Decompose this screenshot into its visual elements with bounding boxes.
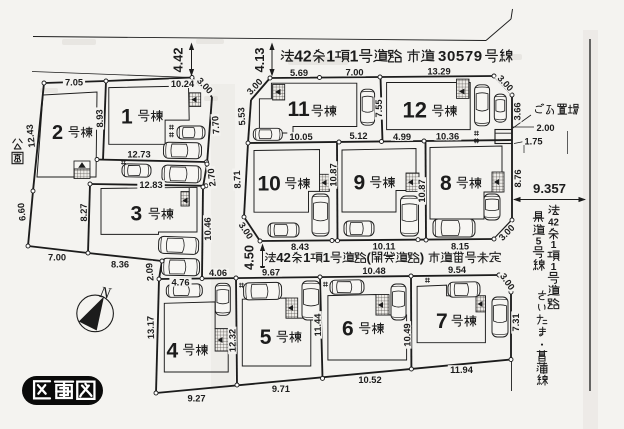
- svg-text:10.87: 10.87: [328, 163, 338, 186]
- svg-text:10.05: 10.05: [289, 132, 312, 142]
- svg-text:1.75: 1.75: [524, 136, 542, 146]
- svg-text:13.17: 13.17: [145, 316, 156, 340]
- svg-text:8.36: 8.36: [111, 259, 129, 269]
- svg-text:8: 8: [440, 172, 452, 195]
- svg-text:12.83: 12.83: [139, 180, 162, 190]
- svg-text:1: 1: [121, 106, 133, 129]
- svg-text:5: 5: [260, 326, 272, 349]
- svg-text:12: 12: [403, 98, 427, 123]
- svg-text:6.60: 6.60: [16, 202, 28, 221]
- svg-text:1: 1: [326, 49, 335, 66]
- svg-text:4.06: 4.06: [209, 268, 227, 278]
- svg-text:4.76: 4.76: [171, 277, 189, 287]
- svg-text:2.09: 2.09: [144, 263, 156, 282]
- svg-text:10.48: 10.48: [362, 266, 385, 276]
- svg-text:9.67: 9.67: [262, 268, 280, 278]
- svg-text:1: 1: [303, 250, 310, 265]
- svg-text:3: 3: [131, 203, 143, 226]
- svg-text:1: 1: [350, 49, 359, 66]
- svg-text:5.69: 5.69: [290, 68, 308, 78]
- svg-text:4: 4: [294, 49, 303, 66]
- svg-text:): ): [420, 250, 424, 265]
- svg-text:2: 2: [284, 250, 291, 265]
- svg-text:11.94: 11.94: [450, 365, 474, 375]
- svg-text:9: 9: [354, 172, 366, 195]
- svg-text:10: 10: [258, 173, 281, 196]
- svg-text:11: 11: [288, 98, 311, 121]
- svg-text:7.70: 7.70: [210, 116, 221, 135]
- svg-text:5.53: 5.53: [236, 107, 247, 126]
- svg-text:4: 4: [167, 340, 179, 363]
- svg-text:10.52: 10.52: [358, 375, 381, 385]
- svg-text:7.05: 7.05: [65, 77, 83, 87]
- svg-text:10.36: 10.36: [436, 131, 459, 141]
- svg-text:10.46: 10.46: [203, 217, 213, 240]
- svg-text:1: 1: [323, 250, 330, 265]
- svg-text:4.99: 4.99: [393, 132, 411, 142]
- svg-text:2.70: 2.70: [206, 168, 218, 187]
- svg-text:12.73: 12.73: [127, 149, 150, 159]
- svg-text:10.49: 10.49: [402, 323, 412, 346]
- svg-text:3.66: 3.66: [513, 102, 523, 120]
- svg-text:2: 2: [52, 122, 63, 144]
- svg-text:42: 42: [548, 217, 559, 228]
- svg-text:9.54: 9.54: [448, 265, 467, 275]
- svg-text:12.32: 12.32: [227, 329, 237, 352]
- svg-text:7.00: 7.00: [48, 252, 66, 262]
- svg-text:9.71: 9.71: [272, 384, 290, 394]
- svg-text:7: 7: [436, 310, 448, 333]
- svg-text:8.76: 8.76: [513, 169, 523, 187]
- svg-text:6: 6: [342, 318, 354, 341]
- svg-text:7.00: 7.00: [345, 67, 363, 77]
- svg-text:8.15: 8.15: [451, 241, 469, 251]
- svg-text:1: 1: [551, 261, 557, 273]
- svg-text:9.357: 9.357: [533, 181, 566, 196]
- svg-text:8.93: 8.93: [94, 109, 105, 127]
- svg-text:(: (: [367, 250, 372, 265]
- svg-text:9.27: 9.27: [187, 393, 205, 403]
- svg-text:2.00: 2.00: [536, 123, 554, 133]
- svg-text:1: 1: [551, 239, 557, 251]
- svg-text:5: 5: [536, 236, 542, 248]
- svg-text:30579: 30579: [438, 48, 483, 65]
- svg-text:8.71: 8.71: [232, 170, 243, 189]
- svg-text:10.24: 10.24: [171, 79, 195, 89]
- svg-text:8.27: 8.27: [79, 203, 89, 221]
- svg-text:10.11: 10.11: [373, 241, 396, 251]
- svg-text:11.44: 11.44: [313, 313, 323, 337]
- svg-text:4.13: 4.13: [252, 48, 267, 73]
- svg-text:7.55: 7.55: [374, 99, 384, 117]
- svg-text:4.50: 4.50: [242, 245, 257, 270]
- svg-text:4.42: 4.42: [171, 48, 186, 73]
- svg-text:2: 2: [303, 49, 312, 66]
- svg-text:7.31: 7.31: [511, 313, 521, 331]
- svg-text:10.87: 10.87: [417, 179, 427, 202]
- svg-text:13.29: 13.29: [427, 66, 450, 76]
- svg-text:5.12: 5.12: [349, 131, 367, 141]
